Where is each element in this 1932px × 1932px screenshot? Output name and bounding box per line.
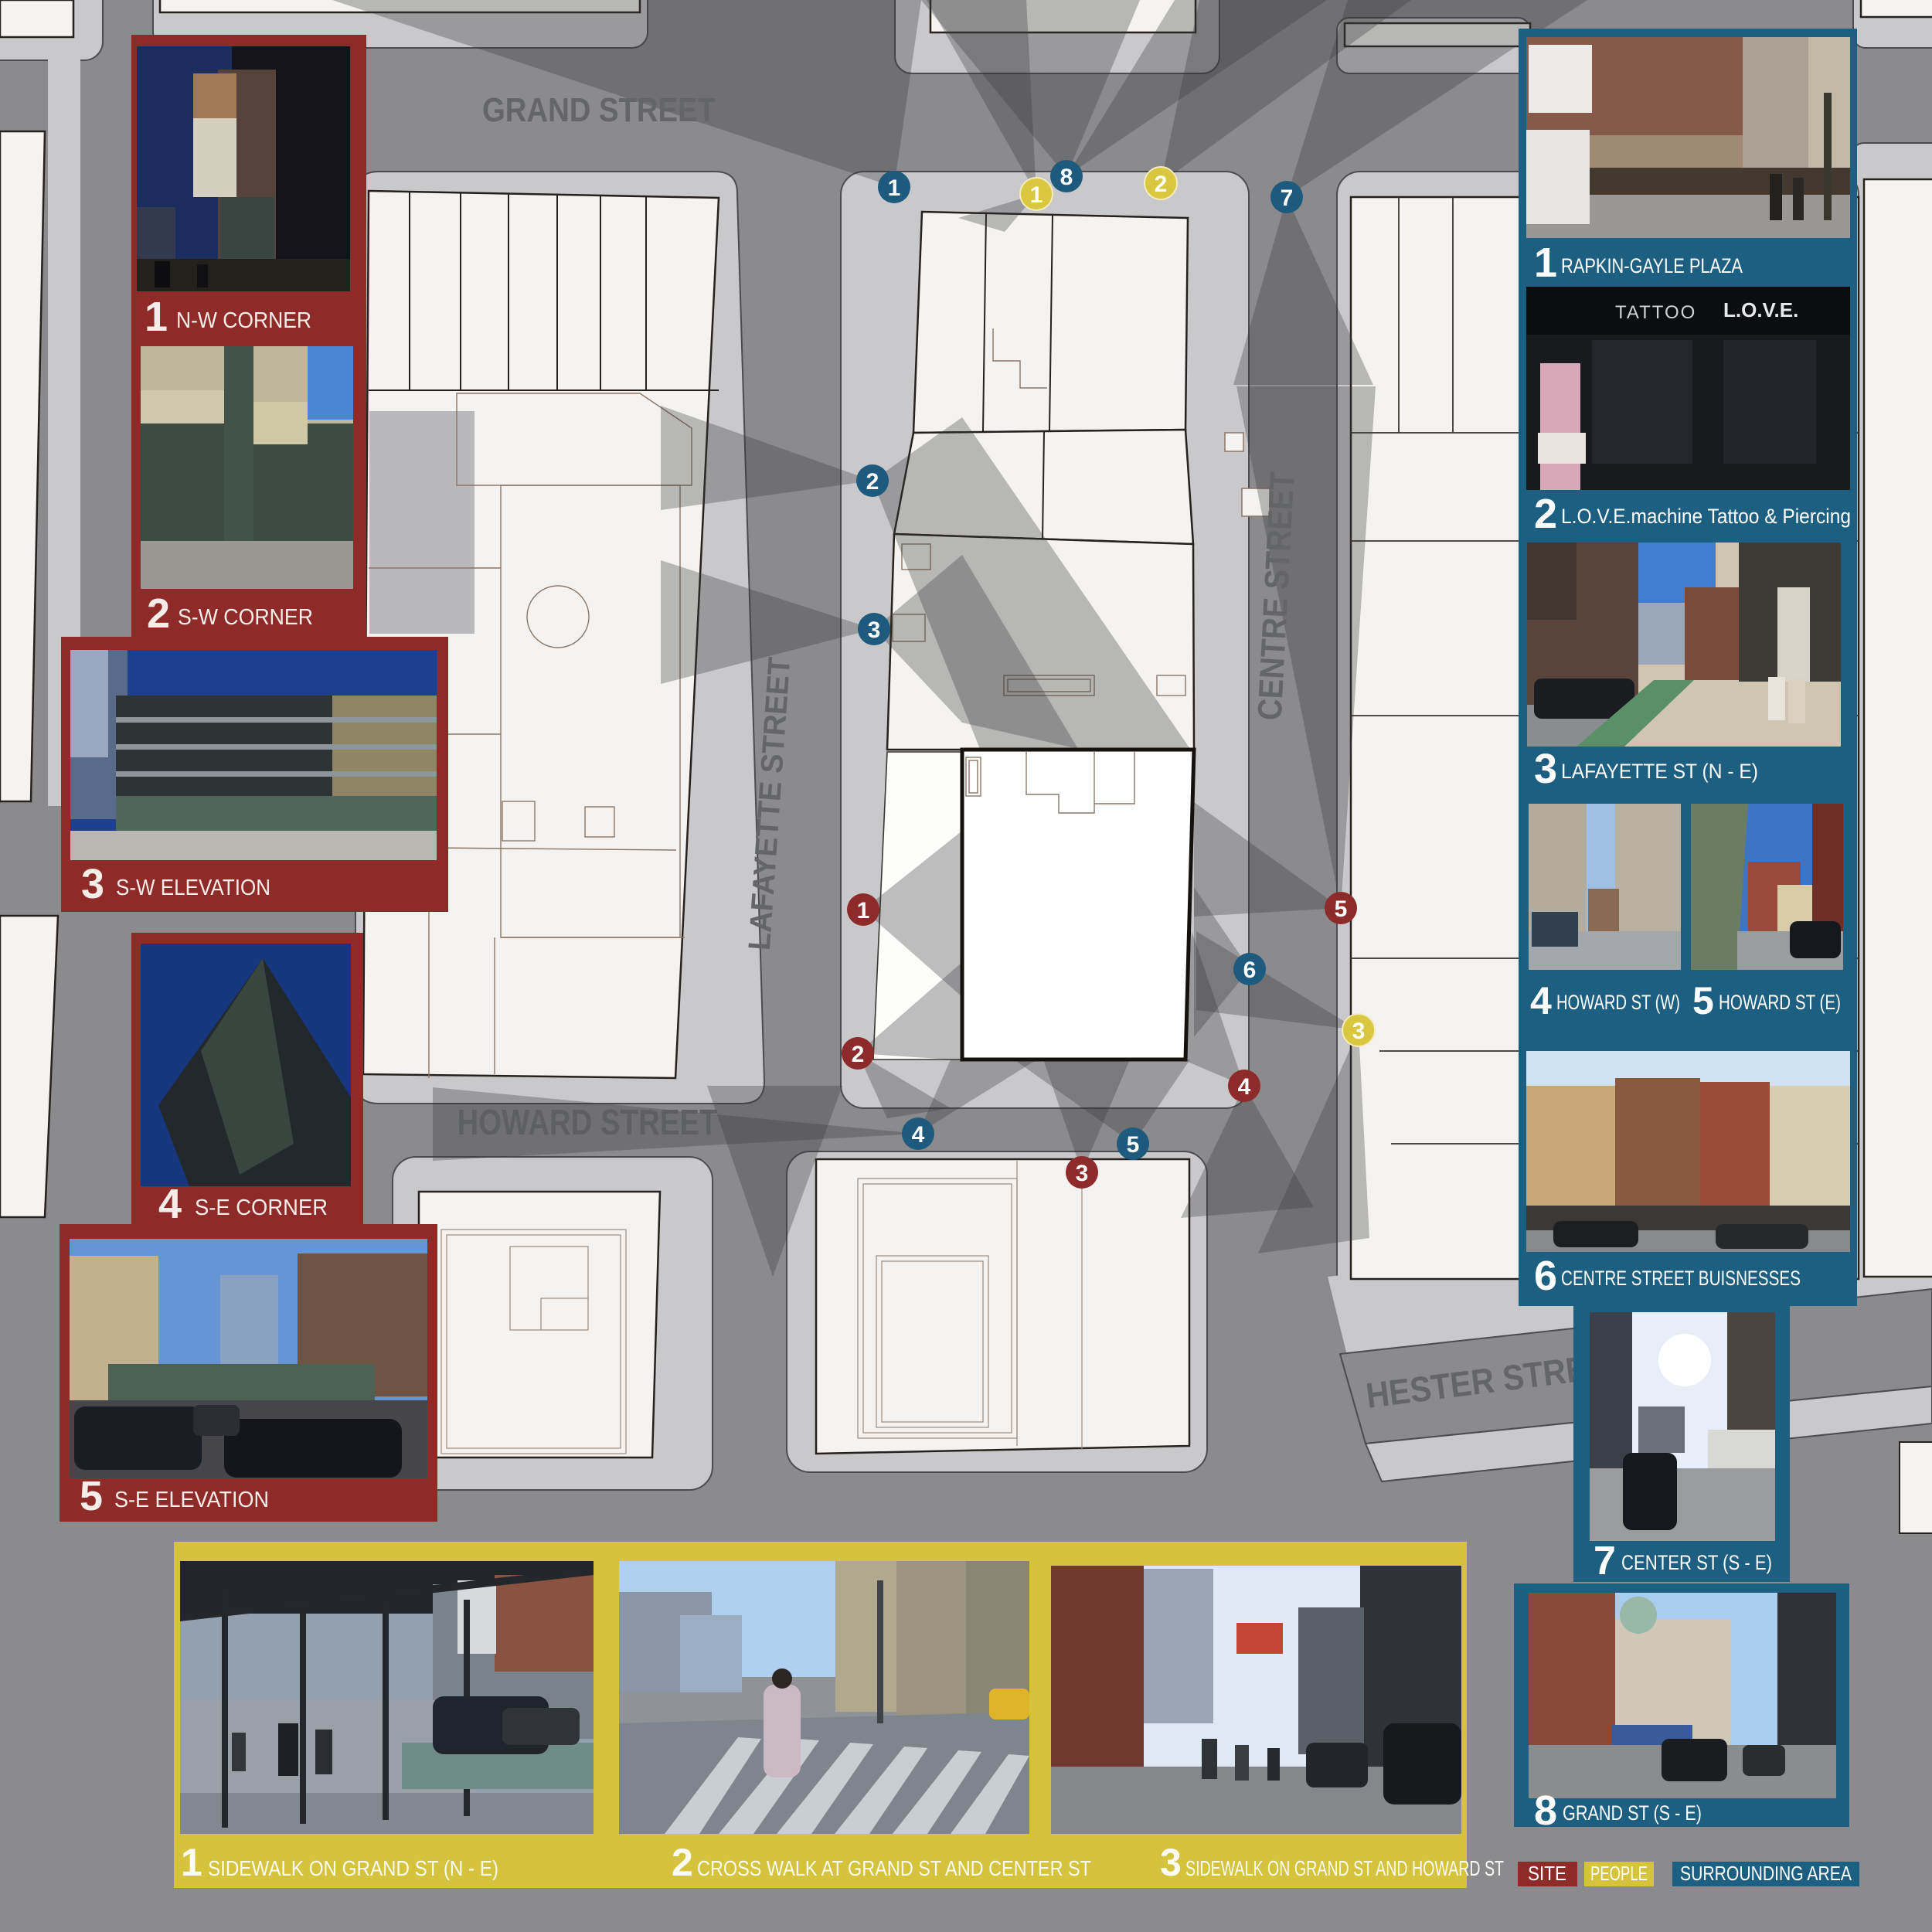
svg-text:N-W CORNER: N-W CORNER xyxy=(176,308,311,333)
svg-text:2: 2 xyxy=(866,469,879,495)
svg-text:1: 1 xyxy=(888,175,901,201)
svg-text:PEOPLE: PEOPLE xyxy=(1590,1862,1648,1885)
svg-text:3: 3 xyxy=(1534,746,1557,792)
svg-text:HOWARD ST (W): HOWARD ST (W) xyxy=(1556,991,1680,1014)
svg-text:1: 1 xyxy=(1030,182,1043,208)
svg-text:4: 4 xyxy=(158,1181,182,1227)
svg-text:8: 8 xyxy=(1060,165,1073,190)
svg-text:5: 5 xyxy=(1127,1132,1140,1158)
svg-text:SURROUNDING AREA: SURROUNDING AREA xyxy=(1680,1862,1852,1885)
svg-text:6: 6 xyxy=(1534,1253,1557,1299)
svg-text:7: 7 xyxy=(1594,1539,1616,1583)
svg-text:1: 1 xyxy=(857,898,870,923)
svg-text:CROSS WALK AT GRAND ST AND CEN: CROSS WALK AT GRAND ST AND CENTER ST xyxy=(697,1856,1091,1880)
svg-text:SITE: SITE xyxy=(1528,1862,1566,1885)
svg-text:S-W ELEVATION: S-W ELEVATION xyxy=(116,876,270,900)
svg-text:2: 2 xyxy=(1155,172,1168,197)
svg-text:2: 2 xyxy=(852,1042,865,1067)
svg-text:CENTRE STREET BUISNESSES: CENTRE STREET BUISNESSES xyxy=(1561,1267,1801,1290)
svg-text:6: 6 xyxy=(1243,957,1257,983)
svg-text:L.O.V.E.: L.O.V.E. xyxy=(1723,298,1798,321)
svg-text:LAFAYETTE ST (N - E): LAFAYETTE ST (N - E) xyxy=(1561,760,1758,783)
svg-text:3: 3 xyxy=(1160,1841,1182,1884)
svg-text:RAPKIN-GAYLE PLAZA: RAPKIN-GAYLE PLAZA xyxy=(1561,254,1743,277)
svg-text:8: 8 xyxy=(1534,1787,1557,1834)
svg-text:TATTOO: TATTOO xyxy=(1615,302,1696,323)
svg-text:3: 3 xyxy=(81,861,104,907)
svg-text:5: 5 xyxy=(80,1473,103,1519)
svg-text:4: 4 xyxy=(1530,979,1552,1022)
svg-text:5: 5 xyxy=(1692,979,1714,1022)
svg-text:3: 3 xyxy=(1076,1161,1089,1186)
svg-text:1: 1 xyxy=(181,1841,202,1884)
svg-text:L.O.V.E.machine Tattoo & Pierc: L.O.V.E.machine Tattoo & Piercing xyxy=(1561,505,1851,528)
svg-text:5: 5 xyxy=(1335,896,1348,922)
svg-text:1: 1 xyxy=(1534,240,1557,286)
svg-text:3: 3 xyxy=(1352,1019,1366,1044)
svg-text:4: 4 xyxy=(1238,1074,1251,1100)
svg-text:1: 1 xyxy=(145,294,168,340)
svg-text:2: 2 xyxy=(1534,491,1557,537)
svg-text:GRAND STREET: GRAND STREET xyxy=(482,91,716,129)
svg-text:SIDEWALK ON GRAND ST AND HOWAR: SIDEWALK ON GRAND ST AND HOWARD ST xyxy=(1185,1856,1504,1880)
svg-text:7: 7 xyxy=(1281,185,1294,211)
svg-text:S-E CORNER: S-E CORNER xyxy=(195,1196,328,1220)
svg-text:SIDEWALK ON GRAND ST (N - E): SIDEWALK ON GRAND ST (N - E) xyxy=(208,1856,498,1880)
svg-text:S-W CORNER: S-W CORNER xyxy=(178,605,313,630)
svg-text:HOWARD ST (E): HOWARD ST (E) xyxy=(1719,991,1841,1014)
svg-text:CENTER ST (S - E): CENTER ST (S - E) xyxy=(1621,1551,1772,1574)
svg-text:GRAND ST (S - E): GRAND ST (S - E) xyxy=(1563,1801,1702,1825)
svg-text:3: 3 xyxy=(868,617,881,643)
svg-text:2: 2 xyxy=(672,1841,693,1884)
svg-text:HOWARD STREET: HOWARD STREET xyxy=(457,1102,718,1142)
svg-text:4: 4 xyxy=(912,1122,925,1148)
svg-text:S-E ELEVATION: S-E ELEVATION xyxy=(114,1488,269,1512)
svg-text:2: 2 xyxy=(147,590,170,637)
